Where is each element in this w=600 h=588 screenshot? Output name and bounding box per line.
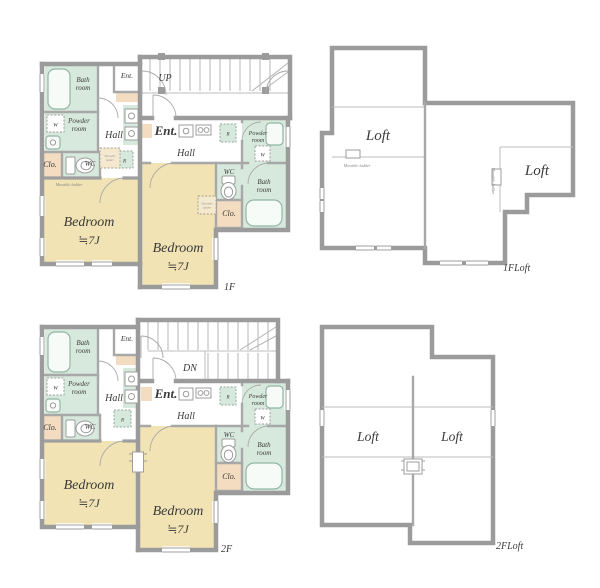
ladder-note-a: Movable ladder: [55, 182, 83, 187]
powder-a-label2: room: [72, 125, 87, 133]
closet-a-label: Clo.: [43, 160, 57, 169]
bathroom-b2-label2: room: [257, 449, 272, 457]
bathtub-icon-b: [246, 200, 282, 226]
closet-b-label: Clo.: [222, 209, 236, 218]
bathroom-a-label2: room: [76, 84, 91, 92]
ladder-box-a-text2: ladder: [106, 158, 115, 162]
entrance-a-label: Ent.: [120, 71, 133, 80]
loft-right-label-2f: Loft: [440, 429, 464, 444]
bedroom-b2-label: Bedroom: [153, 504, 204, 519]
floor-label-2f: 2F: [221, 544, 233, 555]
bedroom-b2-size: ≒7J: [167, 522, 189, 536]
washer-a-letter: W: [53, 123, 58, 129]
floor-plan-2f-loft: Loft Loft 2FLoft: [318, 327, 523, 552]
bathtub-icon-a2: [48, 332, 70, 372]
toilet-icon-b: [221, 176, 236, 200]
wc-b-label: WC: [224, 168, 235, 176]
sink-icon: [46, 136, 60, 149]
wc-b2-label: WC: [224, 431, 235, 439]
bathroom-b-label: Bath: [257, 178, 271, 186]
washer-a2-letter: W: [53, 386, 58, 392]
loft-left-label-2f: Loft: [356, 429, 380, 444]
bathtub-icon: [48, 69, 70, 109]
floor-label-1f: 1F: [224, 282, 236, 293]
powder-b-label2: room: [252, 138, 265, 144]
bedroom-a2-size: ≒7J: [78, 496, 100, 510]
loft-left-label: Loft: [365, 128, 391, 144]
fridge-b2-letter: R: [225, 396, 229, 401]
entrance-a2-label: Ent.: [120, 334, 133, 343]
vanity-icon-b2: [266, 386, 283, 408]
toilet-icon-b2: [221, 439, 236, 463]
bedroom-b-label: Bedroom: [153, 241, 204, 256]
closet-b2-label: Clo.: [222, 472, 236, 481]
ladder-icon-left: [346, 150, 360, 158]
washer-b-letter: W: [260, 153, 265, 159]
entrance-step-b: [141, 124, 152, 138]
bathtub-icon-b2: [246, 463, 282, 489]
stairs-up-label: UP: [158, 73, 171, 84]
entrance-step-a2: [116, 355, 138, 365]
wc-a-label: WC: [85, 160, 96, 168]
entrance-b2-label: Ent.: [154, 386, 178, 401]
bathroom-a2-label: Bath: [76, 339, 90, 347]
closet-a2-label: Clo.: [43, 423, 57, 432]
powder-a2-label: Powder: [67, 380, 90, 388]
floor-plan-1f: Bath room Powder room Ent. Hall Clo. WC …: [38, 53, 291, 293]
wc-a2-label: WC: [85, 423, 96, 431]
hatch-icon: [401, 459, 425, 474]
fridge-b-letter: R: [225, 133, 229, 138]
bedroom-b-size: ≒7J: [167, 259, 189, 273]
entrance-step-b2: [141, 387, 152, 401]
bedroom-a-size: ≒7J: [78, 233, 100, 247]
bathroom-a2-label2: room: [76, 347, 91, 355]
powder-b2-label: Powder: [248, 394, 268, 400]
bedroom-a-label: Bedroom: [64, 215, 115, 230]
floor-plan-sheet: Bath room Powder room Ent. Hall Clo. WC …: [0, 0, 600, 588]
entrance-b-label: Ent.: [154, 123, 178, 138]
loft-right-label: Loft: [524, 163, 550, 179]
floor-label-1f-loft: 1FLoft: [503, 263, 530, 274]
powder-b-label: Powder: [248, 131, 268, 137]
floor-plan-drawing: Bath room Powder room Ent. Hall Clo. WC …: [0, 0, 600, 588]
ladder-note-right: Movable ladder: [491, 167, 496, 195]
hall-b-label: Hall: [176, 148, 195, 159]
bathroom-b2-label: Bath: [257, 441, 271, 449]
loft-2f-outline: [322, 327, 493, 543]
entrance-step-a: [116, 92, 138, 102]
hall-a-label: Hall: [104, 130, 123, 141]
sink-icon-a2: [46, 399, 60, 412]
stairs-2f: [148, 322, 278, 379]
kitchen-icons-b: [179, 125, 211, 137]
floor-plan-1f-loft: Loft Loft Movable ladder Movable ladder …: [318, 48, 573, 274]
hall-a2-label: Hall: [104, 393, 123, 404]
powder-a-label: Powder: [67, 117, 90, 125]
floor-plan-2f: Bath room Powder room Ent. Hall Clo. WC …: [38, 320, 291, 555]
bathroom-b-label2: room: [257, 186, 272, 194]
ladder-box-b-text2: ladder: [203, 206, 212, 210]
bedroom-a2-label: Bedroom: [64, 478, 115, 493]
kitchen-icons-b2: [179, 388, 211, 400]
stairs-dn-label: DN: [182, 363, 198, 374]
washer-b2-letter: W: [260, 416, 265, 422]
bathroom-a-label: Bath: [76, 76, 90, 84]
vanity-icon-b: [266, 123, 283, 145]
ladder-note-left: Movable ladder: [343, 163, 371, 168]
hall-b2-label: Hall: [176, 411, 195, 422]
powder-b2-label2: room: [252, 401, 265, 407]
powder-a2-label2: room: [72, 388, 87, 396]
fridge-a2-letter: R: [120, 419, 124, 424]
fridge-a-letter: R: [122, 160, 126, 165]
floor-label-2f-loft: 2FLoft: [496, 541, 523, 552]
